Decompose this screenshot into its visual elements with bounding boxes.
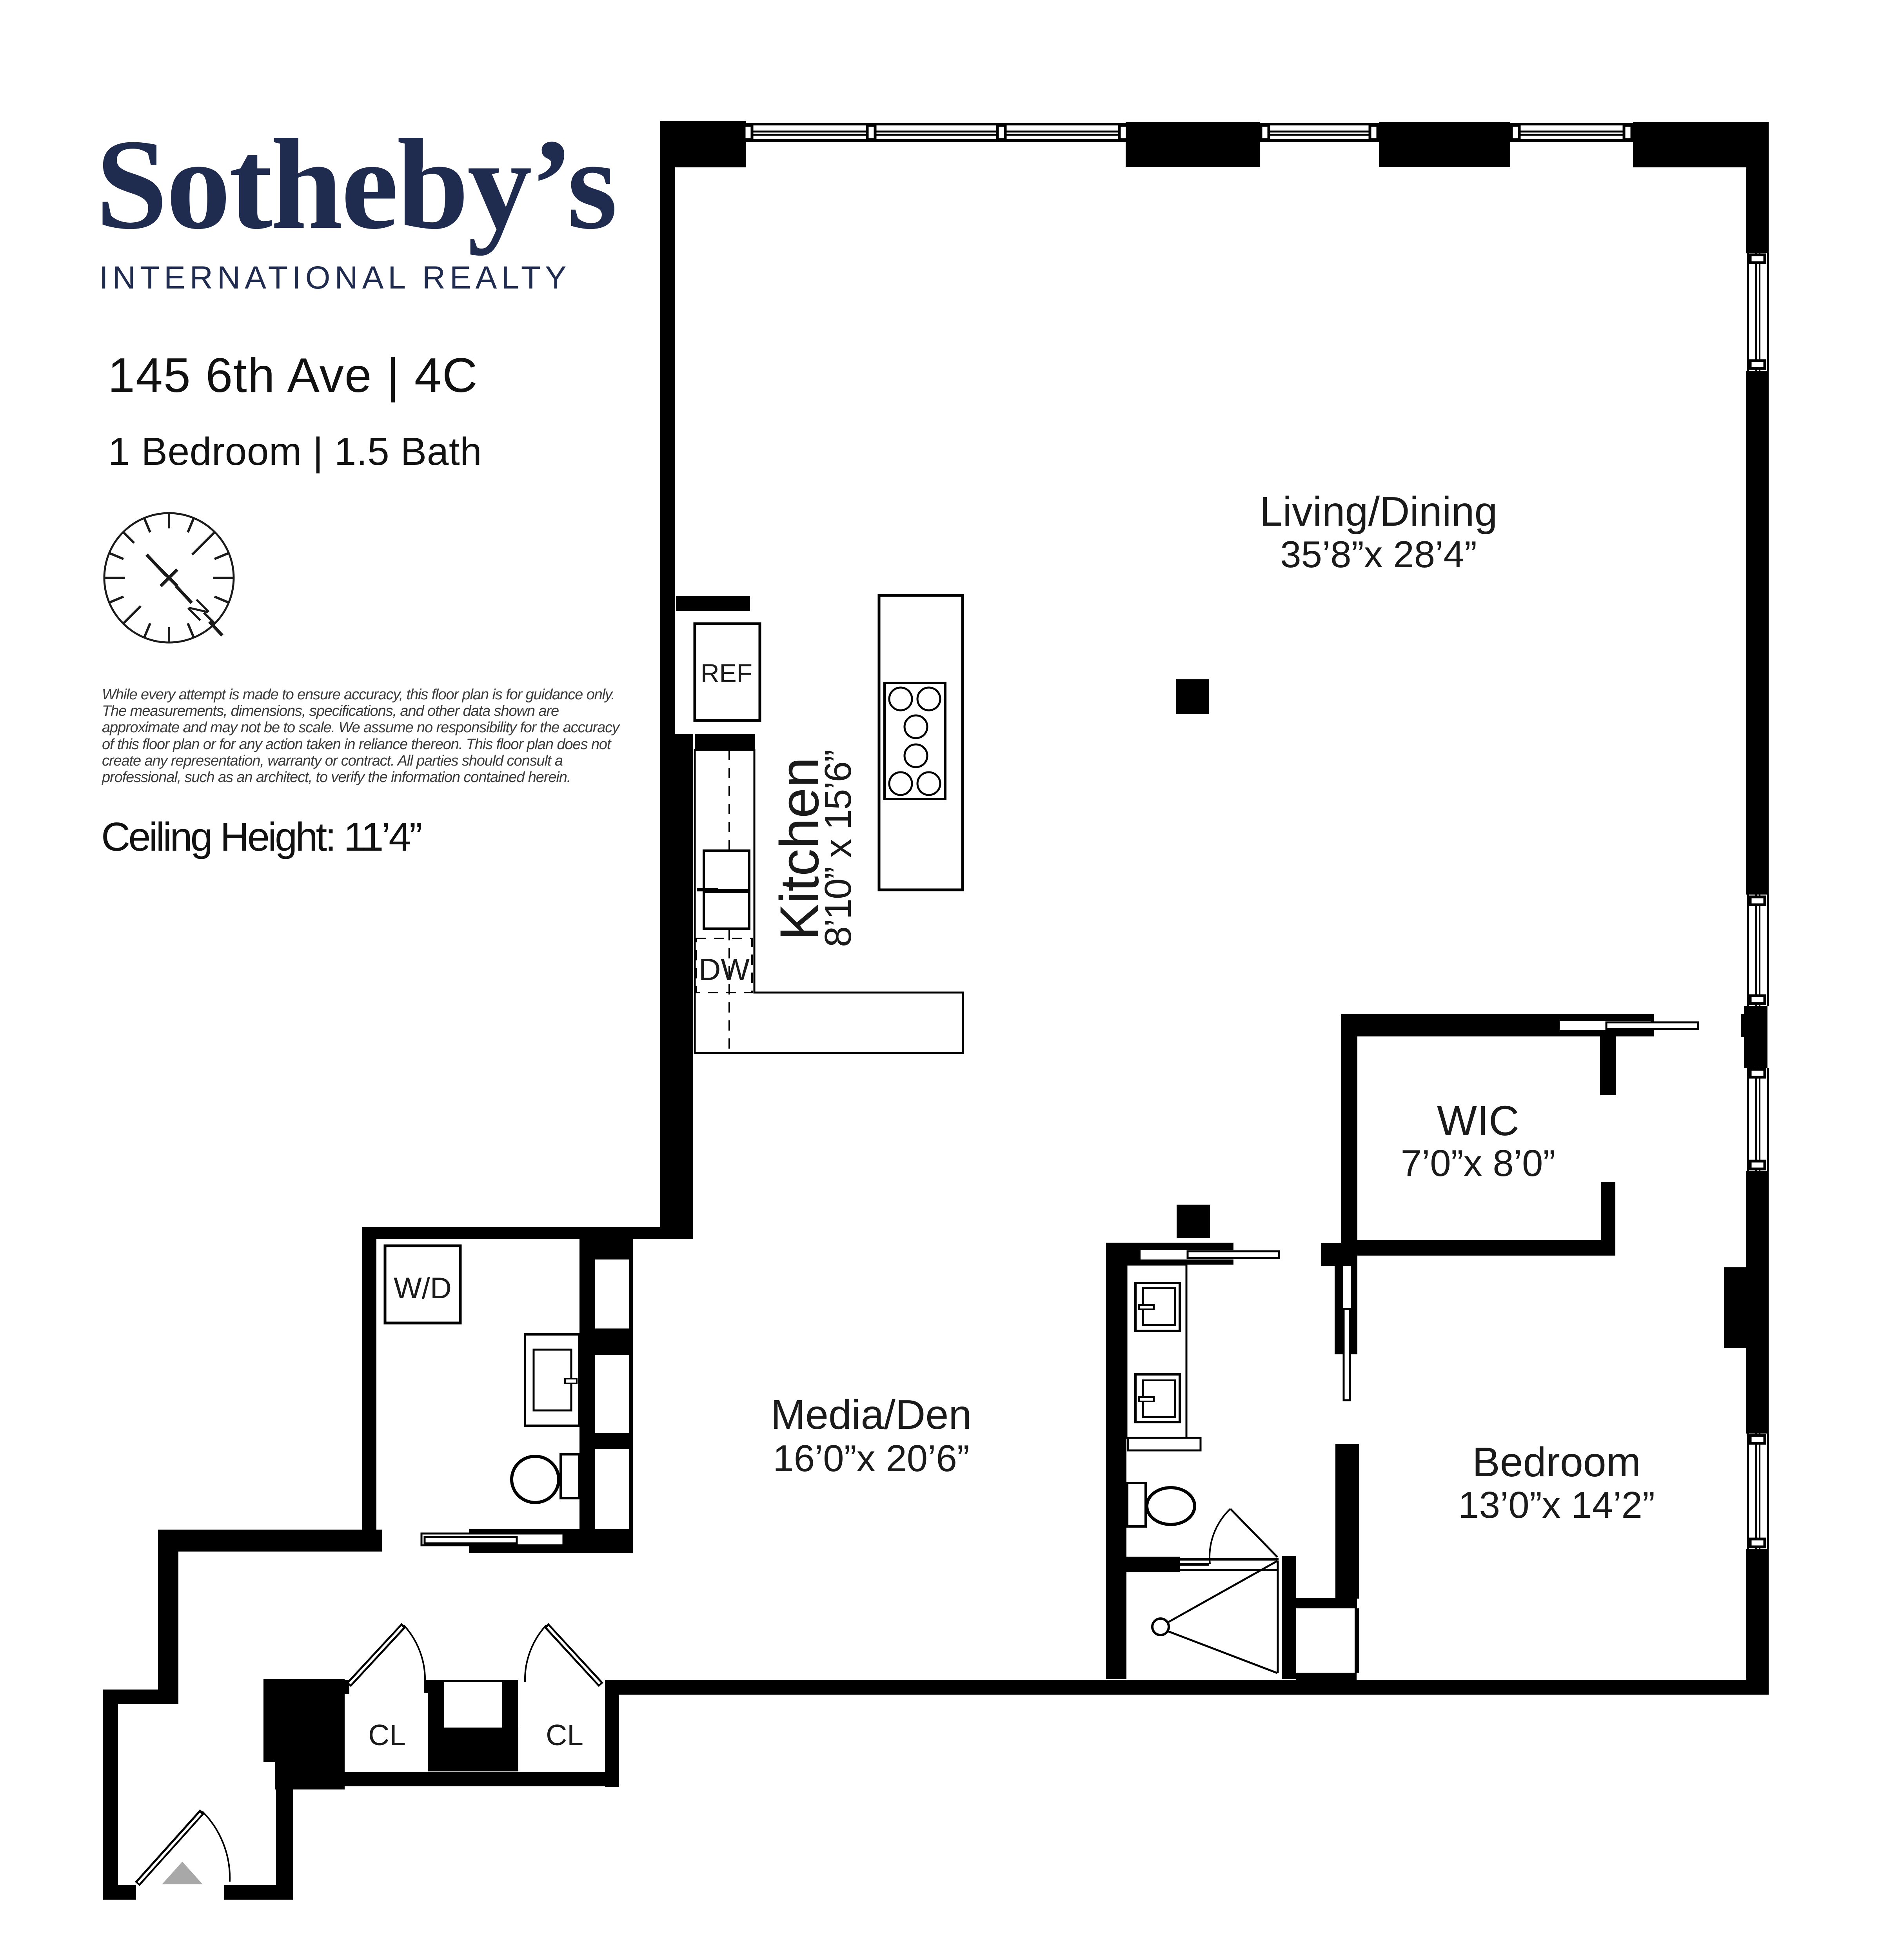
svg-text:While every attempt is made to: While every attempt is made to ensure ac…: [102, 686, 615, 703]
svg-text:The measurements, dimensions,: The measurements, dimensions, specificat…: [102, 703, 559, 719]
svg-text:DW: DW: [699, 952, 750, 987]
svg-text:of this floor plan or for any: of this floor plan or for any action tak…: [102, 736, 612, 753]
svg-text:REF: REF: [701, 659, 752, 688]
svg-text:professional, such as an archi: professional, such as an architect, to v…: [102, 769, 570, 786]
svg-text:8’10” x 15’6”: 8’10” x 15’6”: [817, 750, 859, 947]
svg-text:INTERNATIONAL REALTY: INTERNATIONAL REALTY: [99, 260, 571, 296]
svg-text:145 6th Ave | 4C: 145 6th Ave | 4C: [108, 348, 478, 403]
svg-text:create any representation, war: create any representation, warranty or c…: [102, 753, 563, 769]
svg-text:1 Bedroom | 1.5 Bath: 1 Bedroom | 1.5 Bath: [108, 430, 482, 474]
svg-text:13’0”x 14’2”: 13’0”x 14’2”: [1458, 1484, 1655, 1526]
svg-text:approximate and may not be to: approximate and may not be to scale. We …: [102, 719, 620, 736]
svg-text:7’0”x 8’0”: 7’0”x 8’0”: [1401, 1142, 1556, 1184]
svg-text:16’0”x 20’6”: 16’0”x 20’6”: [773, 1437, 970, 1479]
svg-text:Living/Dining: Living/Dining: [1260, 488, 1498, 535]
svg-text:Ceiling Height: 11’4”: Ceiling Height: 11’4”: [101, 814, 421, 859]
svg-text:Media/Den: Media/Den: [771, 1392, 972, 1438]
svg-text:Sotheby’s: Sotheby’s: [96, 113, 616, 256]
svg-text:CL: CL: [368, 1719, 406, 1751]
svg-text:35’8”x 28’4”: 35’8”x 28’4”: [1280, 534, 1477, 575]
svg-text:Bedroom: Bedroom: [1472, 1439, 1641, 1485]
svg-text:WIC: WIC: [1437, 1097, 1519, 1144]
svg-text:CL: CL: [546, 1719, 583, 1751]
svg-text:W/D: W/D: [394, 1272, 452, 1305]
